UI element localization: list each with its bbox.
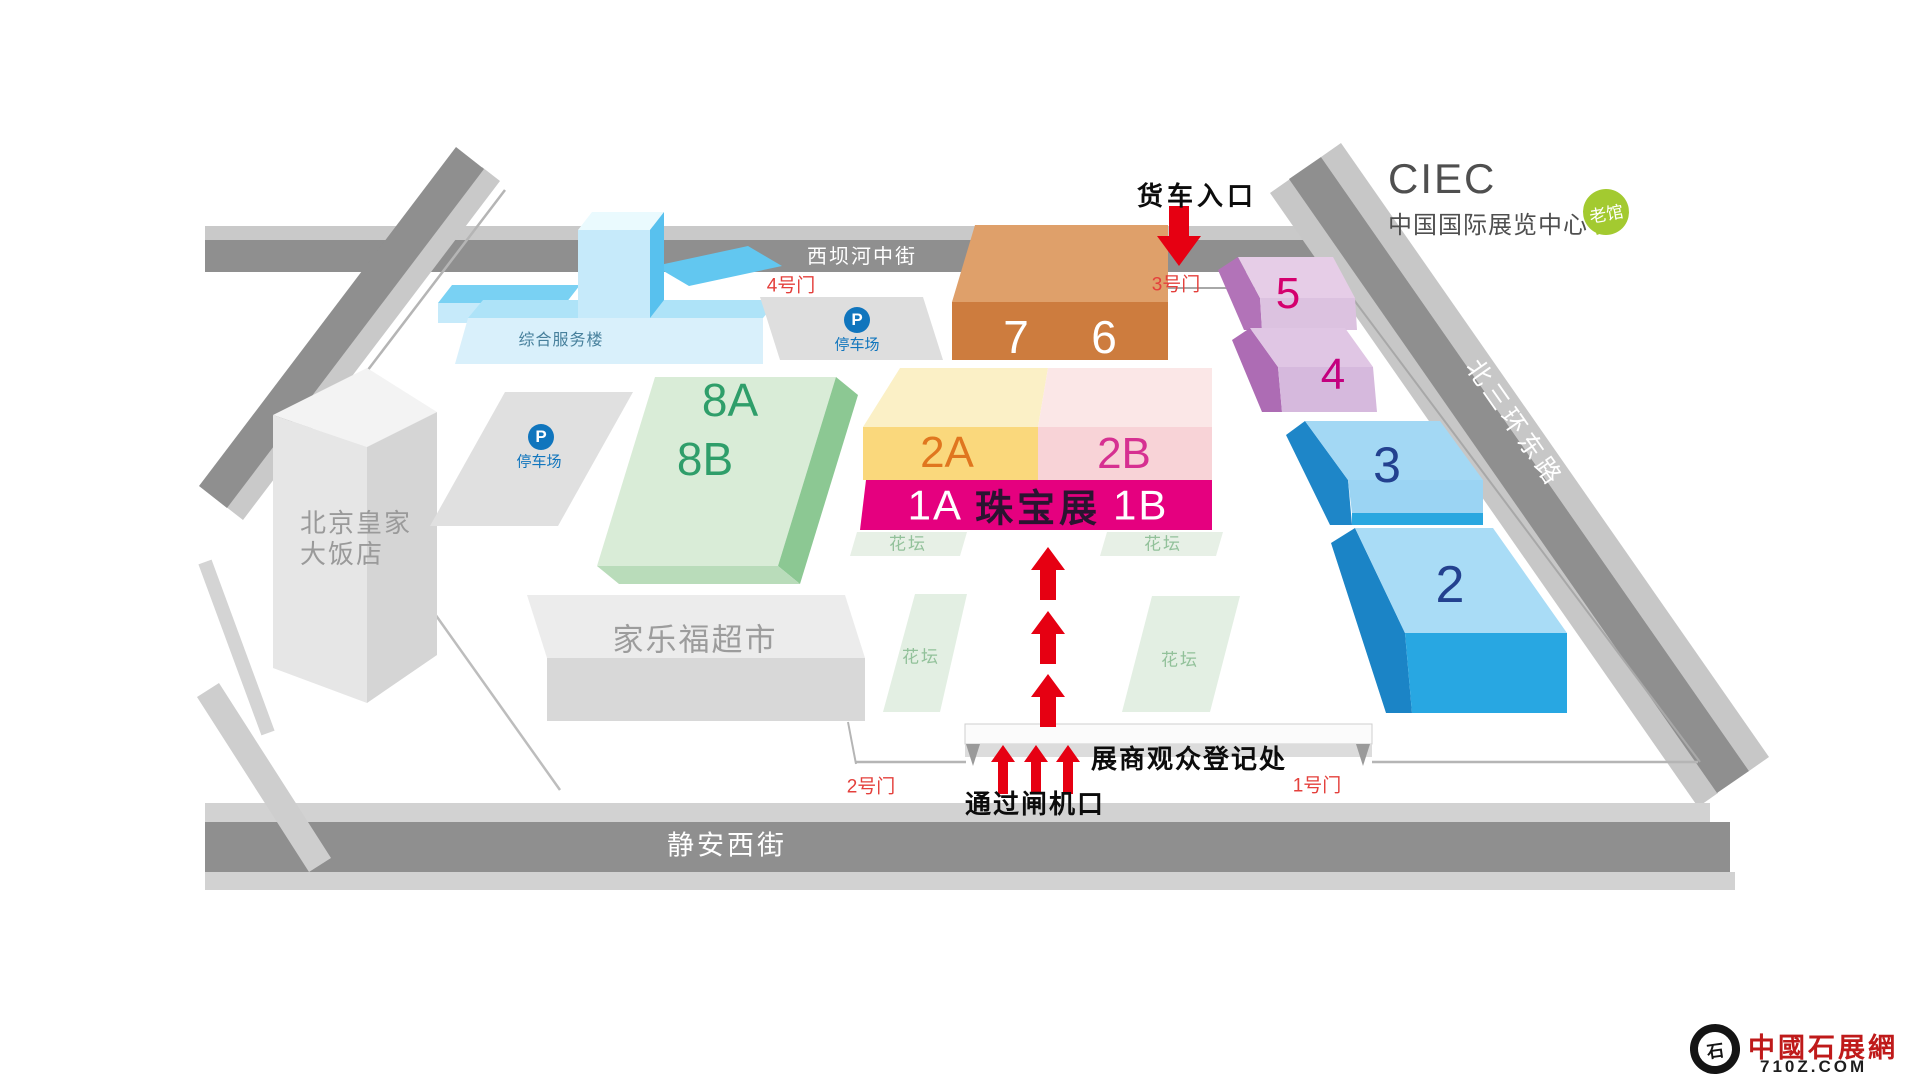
south-street-sidewalk-top [205,803,1710,822]
gate2-fence-tick [848,722,856,764]
flowerbed-label-2: 花坛 [1144,536,1182,553]
hall-7-label: 7 [1003,314,1029,360]
flowerbed-label-1: 花坛 [889,536,927,553]
supermarket-front-face [547,658,865,721]
hall76-front-face [952,302,1168,360]
supermarket-label: 家乐福超市 [613,625,778,656]
service-building-label: 综合服务楼 [518,333,603,349]
hotel-label-line1: 北京皇家 [300,508,412,539]
path-arrow-up-1-icon [1031,547,1065,600]
parking-icon-west: P [528,424,554,450]
flowerbed-label-3: 花坛 [902,649,940,666]
service-base-front [455,318,763,364]
hall2b-top-face [1038,368,1212,427]
hall3-front-strip [1352,513,1483,525]
hotel-label: 北京皇家 大饭店 [300,508,412,570]
hall3-front-face [1348,480,1483,513]
hall-8a-label: 8A [702,377,758,423]
gate-3-label: 3号门 [1152,276,1201,295]
map-shapes [0,0,1914,1080]
parking-label-west: 停车场 [516,455,561,470]
hall76-top-face [952,225,1168,302]
hall-4-label: 4 [1321,353,1345,397]
service-tower-front [578,230,650,318]
turnstile-note: 通过闸机口 [965,791,1105,817]
path-arrow-up-2-icon [1031,611,1065,664]
registration-note: 展商观众登记处 [1091,746,1287,772]
hall-2b-label: 2B [1097,432,1151,476]
parking-icon-north: P [844,307,870,333]
banner-1b-label: 1B [1113,481,1168,529]
south-street-sidewalk-bottom [205,872,1735,890]
hotel-label-line2: 大饭店 [300,539,412,570]
jewelry-banner-label: 1A 珠宝展 1B [908,478,1169,533]
brand-acronym: CIEC [1388,158,1496,200]
hall2-front-face [1405,633,1567,713]
truck-entrance-note: 货车入口 [1137,183,1257,209]
hall-3-label: 3 [1373,440,1401,490]
hall-8b-label: 8B [677,436,733,482]
banner-title-label: 珠宝展 [975,478,1101,533]
watermark-site-url: 710Z.COM [1760,1057,1867,1077]
brand-name: 中国国际展览中心 [1388,214,1588,238]
service-tower-side [650,212,664,318]
street-south-label: 静安西街 [667,833,787,860]
street-north-label: 西坝河中街 [807,247,917,267]
service-tower-top [578,212,664,230]
banner-1a-label: 1A [908,481,963,529]
south-street-road [205,822,1730,872]
path-arrow-up-3-icon [1031,674,1065,727]
map-canvas: 西坝河中街 静安西街 七圣南路 北三环东路 北京皇家 大饭店 综合服务楼 家乐福… [0,0,1914,1080]
hall2a-top-face [863,368,1048,427]
hall8-front-face [597,566,800,584]
gate-4-label: 4号门 [767,277,816,296]
parking-label-north: 停车场 [834,338,879,353]
hall-6-label: 6 [1091,314,1117,360]
gate-2-label: 2号门 [847,778,896,797]
flowerbed-label-4: 花坛 [1161,652,1199,669]
hall-2a-label: 2A [920,431,974,475]
watermark-seal-char: 石 [1705,1035,1725,1062]
hall-2-label: 2 [1436,559,1465,611]
hall5-front-face [1260,298,1357,330]
registration-platform-top [965,724,1372,744]
gate-1-label: 1号门 [1293,777,1342,796]
old-hall-badge-label: 老馆 [1587,197,1625,228]
hall-5-label: 5 [1276,272,1300,316]
